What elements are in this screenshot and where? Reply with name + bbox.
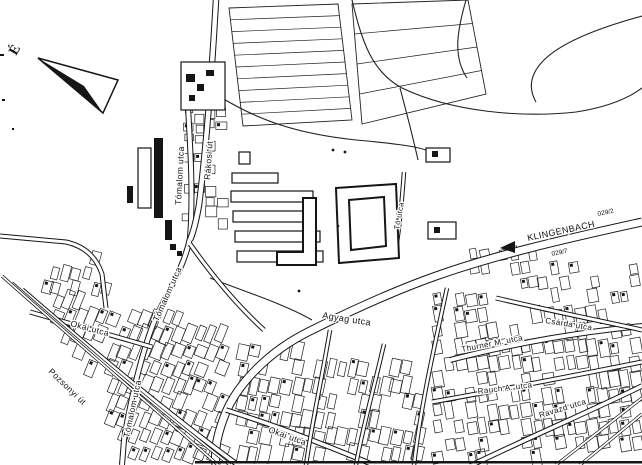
parcel xyxy=(151,446,162,460)
parcel xyxy=(433,404,443,416)
parcel xyxy=(400,375,412,394)
street-label-rakosi-ut: Rákosi út xyxy=(202,140,215,180)
parcel xyxy=(464,309,477,323)
parcel-divider xyxy=(232,27,341,31)
parcel xyxy=(247,446,258,463)
parcel xyxy=(194,344,208,359)
parcel xyxy=(162,447,174,462)
parcel xyxy=(454,420,464,433)
parcel xyxy=(334,427,348,446)
parcel xyxy=(586,386,596,403)
parcel xyxy=(554,357,565,371)
compass-north-indicator: É xyxy=(5,41,118,113)
parcel xyxy=(182,360,194,376)
parcel xyxy=(443,401,454,420)
road-rauch-a-utca-core xyxy=(432,362,642,402)
apartment-block-u xyxy=(336,184,399,263)
parcel xyxy=(292,446,305,461)
parcel xyxy=(520,261,530,274)
parcel xyxy=(467,422,478,435)
field-boundary xyxy=(210,278,312,320)
parcel xyxy=(403,431,413,445)
parcel xyxy=(553,340,564,353)
parcel xyxy=(327,394,337,410)
parcel xyxy=(598,339,611,358)
parcel xyxy=(610,342,619,354)
parcel xyxy=(327,358,337,378)
parcel xyxy=(248,344,261,357)
railway-track-core xyxy=(2,276,218,465)
parcel xyxy=(149,341,166,361)
parcel xyxy=(619,435,632,452)
parcel xyxy=(194,362,208,378)
parcel xyxy=(574,421,587,434)
parcel xyxy=(433,293,442,305)
parcel xyxy=(259,395,270,412)
parcel xyxy=(465,293,478,307)
parcel xyxy=(576,355,589,369)
parcel xyxy=(629,264,638,275)
parcel xyxy=(127,309,141,325)
parcel xyxy=(369,409,380,428)
parcel xyxy=(348,378,359,395)
parcel xyxy=(172,310,184,326)
parcel xyxy=(477,417,487,434)
parcel xyxy=(432,370,445,388)
map-svg: É Tómalom utcaRákosi útTómalom utcaTómal… xyxy=(0,0,642,465)
parcel xyxy=(60,264,72,281)
parcel xyxy=(630,274,641,286)
parcel xyxy=(50,281,61,294)
parcel xyxy=(469,248,477,259)
parcel xyxy=(279,378,292,395)
parcel xyxy=(567,355,576,370)
parcel xyxy=(465,401,478,419)
parcel xyxy=(50,267,60,280)
parcel xyxy=(455,293,465,306)
parcel xyxy=(454,321,468,338)
parcel xyxy=(590,276,599,288)
parcel xyxy=(611,291,620,303)
parcel xyxy=(216,122,227,129)
parcel-strip-band xyxy=(229,4,352,126)
parcel-divider xyxy=(236,62,345,67)
parcel xyxy=(476,371,488,384)
parcel xyxy=(391,447,401,462)
parcel xyxy=(174,446,185,460)
parcel xyxy=(107,343,121,361)
map-page: É Tómalom utcaRákosi útTómalom utcaTómal… xyxy=(0,0,642,465)
parcel xyxy=(292,377,305,395)
parcel xyxy=(218,219,227,229)
parcel xyxy=(195,114,204,124)
school-building xyxy=(426,148,450,162)
parcel xyxy=(390,429,404,446)
parcel xyxy=(205,186,215,196)
parcel xyxy=(257,443,271,463)
public-building xyxy=(428,222,456,239)
parcel xyxy=(433,420,442,433)
parcel xyxy=(217,199,228,207)
parcel-divider xyxy=(355,24,473,35)
parcel xyxy=(400,360,412,375)
parcel xyxy=(196,125,203,133)
scan-artifacts xyxy=(0,54,14,130)
parcel xyxy=(206,206,217,217)
parcel xyxy=(84,359,98,377)
road-left-core xyxy=(0,236,106,308)
parcel xyxy=(214,324,228,343)
parcel xyxy=(72,290,86,310)
parcel xyxy=(359,380,368,394)
parcel xyxy=(477,307,488,322)
parcel xyxy=(258,379,269,393)
parcel xyxy=(183,375,197,395)
parcel xyxy=(455,438,466,452)
parcel xyxy=(630,337,642,354)
parcel-divider xyxy=(233,39,342,44)
footpath xyxy=(458,0,467,78)
parcel xyxy=(171,342,186,358)
footpath xyxy=(400,88,418,160)
street-label-rauch-a-utca: Rauch A. utca xyxy=(477,380,533,396)
parcel xyxy=(269,394,281,408)
north-label: É xyxy=(5,41,24,58)
parcel xyxy=(389,358,402,377)
parcel xyxy=(620,291,628,302)
parcel-number: 029/7 xyxy=(551,248,569,258)
field-boundary xyxy=(222,98,428,151)
parcel xyxy=(292,395,305,414)
parcel xyxy=(150,361,162,375)
parcel-divider xyxy=(242,108,351,114)
parcel xyxy=(268,377,281,394)
parcel xyxy=(541,387,553,405)
parcel xyxy=(247,429,260,444)
parcel xyxy=(215,359,230,376)
parcel xyxy=(498,405,510,420)
parcel xyxy=(486,322,499,339)
parcel xyxy=(555,387,565,404)
parcel xyxy=(587,288,599,303)
parcel xyxy=(498,355,510,369)
parcel xyxy=(528,276,539,288)
parcel xyxy=(139,428,150,442)
parcel xyxy=(206,198,214,206)
street-label-tomalom-utca-north: Tómalom utca xyxy=(173,146,186,205)
parcel xyxy=(105,311,120,327)
scan-edge-line xyxy=(195,461,642,464)
parcel xyxy=(568,261,579,273)
parcel xyxy=(488,420,500,433)
parcel xyxy=(632,436,642,451)
street-label-pozsonyi-ut: Pozsonyi út xyxy=(47,366,89,407)
parcel xyxy=(509,405,519,419)
parcel xyxy=(478,293,488,305)
parcel xyxy=(520,278,528,288)
parcel xyxy=(107,378,119,394)
parcel xyxy=(337,362,347,377)
parcel-divider xyxy=(230,16,339,20)
parcel xyxy=(139,447,150,462)
parcel xyxy=(83,267,93,280)
parcel xyxy=(313,447,326,463)
footpath xyxy=(352,0,642,114)
parcel xyxy=(183,344,196,358)
parcel-divider xyxy=(237,74,346,79)
parcel-divider xyxy=(235,50,344,55)
parcel xyxy=(521,418,533,436)
parcel xyxy=(182,323,198,344)
parcel xyxy=(248,397,258,411)
parcel xyxy=(559,276,570,290)
parcel xyxy=(150,376,164,392)
parcel xyxy=(599,370,610,389)
parcel-divider xyxy=(360,71,482,95)
parcel xyxy=(325,412,335,429)
parcel xyxy=(550,261,560,275)
parcel xyxy=(61,289,76,309)
parcel xyxy=(104,409,120,427)
parcel xyxy=(91,282,101,296)
parcel xyxy=(520,402,532,417)
parcel xyxy=(369,428,381,443)
parcel xyxy=(487,404,499,421)
parcel xyxy=(487,371,497,386)
parcel xyxy=(510,262,520,275)
parcel xyxy=(551,287,560,302)
footpath xyxy=(531,16,642,102)
parcel xyxy=(41,280,53,295)
parcel xyxy=(488,355,500,372)
parcel xyxy=(445,438,455,450)
parcel xyxy=(454,306,465,321)
parcel-divider xyxy=(240,97,349,103)
parcel xyxy=(381,447,392,462)
parcel xyxy=(202,393,218,412)
junction-buildings xyxy=(181,62,225,110)
street-label-tomalom-utca-mid: Tómalom utca xyxy=(151,265,184,323)
parcel xyxy=(499,419,510,435)
parcel xyxy=(128,446,140,460)
parcel-divider xyxy=(239,85,348,90)
parcel xyxy=(512,355,521,370)
road-left xyxy=(0,236,106,308)
parcel xyxy=(236,344,250,362)
parcel-number: 029/2 xyxy=(597,208,615,218)
parcel xyxy=(292,359,305,376)
